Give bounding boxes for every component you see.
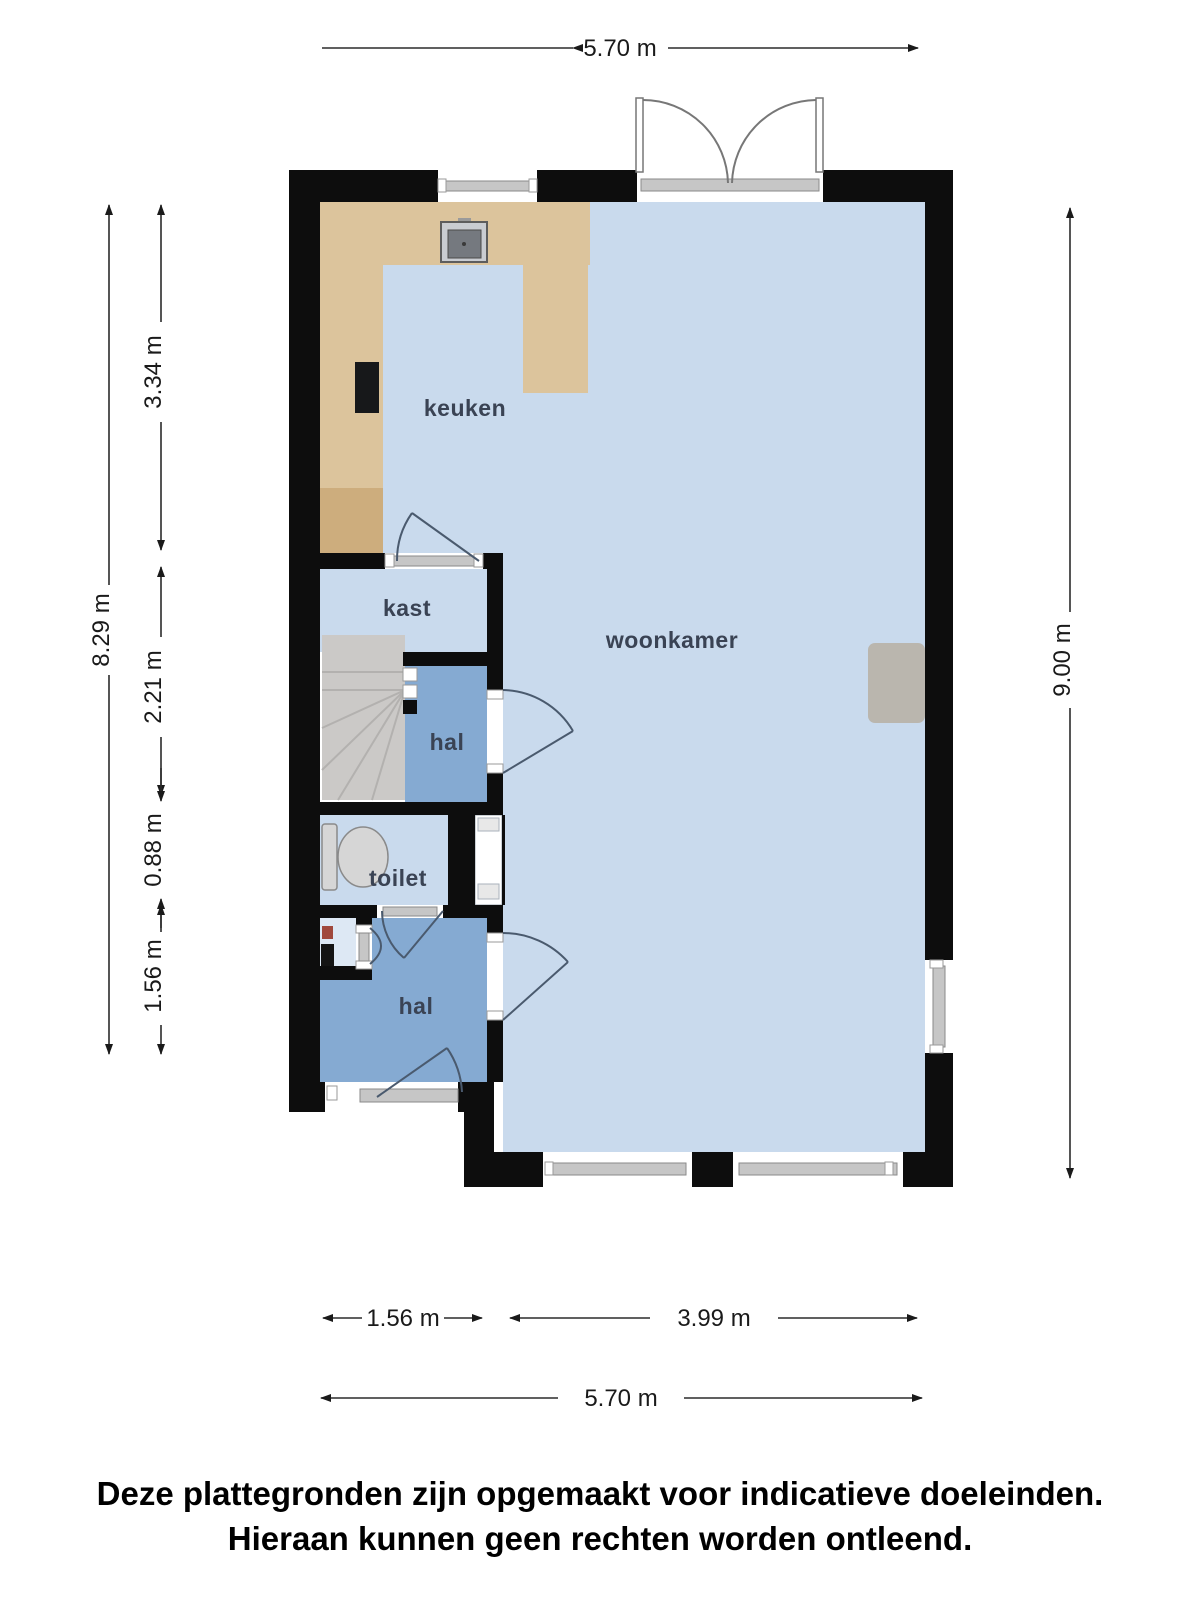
- disclaimer-line-1: Deze plattegronden zijn opgemaakt voor i…: [97, 1475, 1104, 1512]
- floorplan-canvas: keuken kast hal toilet hal woonkamer 5.7…: [0, 0, 1200, 1600]
- dim-left-kitchen: 3.34 m: [140, 335, 167, 408]
- upper-hall-label: hal: [430, 729, 465, 755]
- dim-bottom-hall: 1.56 m: [366, 1305, 439, 1332]
- dim-left-toilet: 0.88 m: [140, 813, 167, 886]
- kitchen-label: keuken: [424, 395, 506, 421]
- dim-bottom-width: 5.70 m: [584, 1385, 657, 1412]
- dim-right-height: 9.00 m: [1049, 623, 1076, 696]
- fireplace: [868, 643, 925, 723]
- dim-bottom-living: 3.99 m: [677, 1305, 750, 1332]
- closet-label: kast: [383, 595, 431, 621]
- toilet-label: toilet: [369, 865, 427, 891]
- french-door-icon: [636, 98, 823, 183]
- dim-left-total: 8.29 m: [88, 593, 115, 666]
- staircase: [322, 635, 405, 800]
- disclaimer-line-2: Hieraan kunnen geen rechten worden ontle…: [228, 1520, 972, 1557]
- lower-hall-label: hal: [399, 993, 434, 1019]
- counter-left-dark-segment: [320, 488, 383, 553]
- cooktop-icon: [355, 362, 379, 413]
- meter-box-red: [322, 926, 333, 939]
- dim-top-width: 5.70 m: [583, 35, 656, 62]
- dim-left-hall: 1.56 m: [140, 939, 167, 1012]
- sink-icon: [441, 218, 487, 262]
- living-room-label: woonkamer: [605, 627, 738, 653]
- floorplan-page: keuken kast hal toilet hal woonkamer 5.7…: [0, 0, 1200, 1600]
- dim-left-closet-hall: 2.21 m: [140, 650, 167, 723]
- lower-hall-floor-left: [320, 980, 372, 1082]
- meter-box-black: [321, 944, 334, 967]
- counter-right-run: [523, 265, 588, 393]
- duct-shaft: [475, 815, 502, 905]
